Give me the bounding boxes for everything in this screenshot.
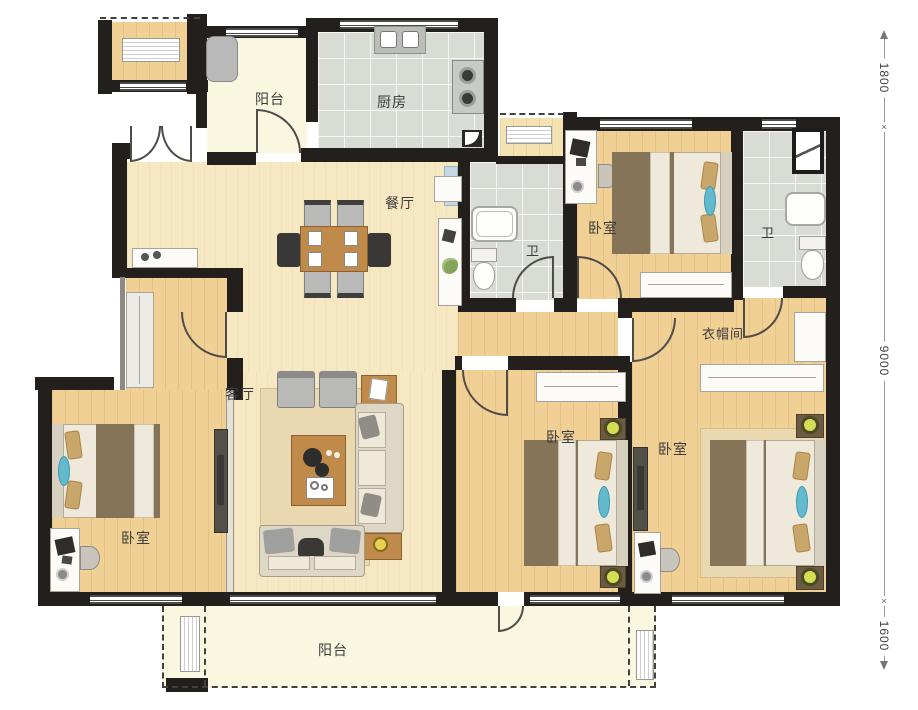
- window: [226, 28, 298, 37]
- window: [120, 82, 186, 91]
- radiator: [180, 616, 200, 672]
- room-label-closet: 衣帽间: [702, 324, 744, 343]
- laptop-icon: [638, 541, 656, 558]
- room-label-bath-middle: 卫: [526, 241, 540, 260]
- loveseat-seat: [314, 556, 356, 570]
- wall: [301, 148, 496, 162]
- window-framed-glass: [796, 132, 820, 170]
- room-label-kitchen: 厨房: [377, 92, 407, 112]
- dimension-arrow-down-icon: [880, 661, 888, 670]
- wall: [554, 298, 564, 312]
- dashed-edge: [100, 17, 200, 19]
- room-label-bedroom-bottom-middle: 卧室: [546, 427, 576, 447]
- dimension-arrow-up-icon: [880, 30, 888, 39]
- wall: [458, 298, 516, 312]
- wall: [306, 18, 318, 122]
- lamp-icon: [801, 568, 819, 586]
- armchair: [277, 371, 315, 408]
- radiator: [506, 126, 552, 144]
- room-label-bedroom-bottom-right: 卧室: [658, 439, 688, 459]
- wall: [442, 370, 456, 596]
- dining-chair: [277, 233, 301, 267]
- tray-ring: [310, 481, 319, 490]
- dining-chair: [304, 270, 331, 298]
- lamp-icon: [604, 568, 622, 586]
- cup-icon: [326, 450, 332, 456]
- bathtub-inner: [476, 211, 513, 237]
- bed-blanket-fold: [650, 152, 670, 254]
- wardrobe: [126, 292, 154, 388]
- closet-shelf: [700, 364, 824, 392]
- wardrobe: [640, 272, 732, 298]
- desk-chair: [660, 548, 680, 572]
- wall: [508, 356, 630, 370]
- wall: [112, 143, 130, 159]
- book: [369, 378, 389, 401]
- desk-chair: [80, 546, 100, 570]
- window: [762, 119, 796, 129]
- toilet-bowl: [801, 250, 824, 280]
- dimension-tick: ×: [881, 596, 886, 606]
- corridor-floor: [458, 312, 618, 356]
- stove-burner: [459, 90, 476, 107]
- wardrobe-line: [544, 386, 618, 387]
- entry-door-right-leaf: [161, 126, 192, 162]
- console-decor: [141, 253, 149, 261]
- bed-blanket-fold: [558, 440, 576, 566]
- cup-icon: [334, 452, 340, 458]
- room-label-living: 客厅: [225, 384, 255, 404]
- closet-shelf: [794, 312, 826, 362]
- lamp-icon: [801, 416, 819, 434]
- dining-chair: [337, 270, 364, 298]
- wall: [455, 356, 462, 370]
- sofa-cushion: [358, 450, 386, 486]
- tv-screen: [637, 466, 644, 510]
- window: [530, 595, 620, 604]
- loveseat-seat: [268, 556, 310, 570]
- console-decor: [153, 251, 161, 259]
- wall: [731, 131, 743, 300]
- flower-icon: [573, 182, 582, 191]
- place-setting: [308, 231, 322, 246]
- pillow-accent: [704, 186, 716, 216]
- balcony-door-gap: [498, 592, 524, 606]
- dimension-label-9000: 9000: [877, 342, 891, 381]
- pillow-accent: [598, 486, 610, 518]
- room-label-balcony-bottom: 阳台: [318, 640, 348, 660]
- place-setting: [344, 231, 358, 246]
- dimension-label-1800: 1800: [877, 59, 891, 98]
- bathtub: [785, 192, 826, 226]
- wardrobe-line: [139, 296, 140, 384]
- loveseat-item: [298, 538, 324, 556]
- wall-thin: [120, 277, 125, 390]
- pillow-accent: [58, 456, 70, 486]
- armchair: [319, 371, 357, 408]
- wall: [622, 298, 734, 312]
- dining-chair: [367, 233, 391, 267]
- bed-blanket-fold: [134, 424, 154, 518]
- desk-item: [576, 158, 586, 166]
- dashed-edge: [654, 606, 656, 688]
- bed-blanket-fold: [746, 440, 764, 566]
- place-setting: [308, 252, 322, 267]
- room-label-bedroom-top-right: 卧室: [588, 218, 618, 238]
- dining-chair: [304, 200, 331, 228]
- window: [600, 119, 692, 129]
- bed-headboard: [616, 440, 628, 566]
- dimension-label-1600: 1600: [877, 617, 891, 656]
- radiator: [122, 38, 180, 62]
- loveseat-cushion: [263, 527, 295, 554]
- dashed-edge: [500, 113, 564, 115]
- bowl-icon: [373, 537, 388, 552]
- room-label-dining: 餐厅: [385, 193, 415, 213]
- dining-chair: [337, 200, 364, 228]
- dashed-edge: [162, 686, 656, 688]
- kitchen-sink-basin: [380, 31, 397, 48]
- lamp-icon: [604, 419, 622, 437]
- flower-icon: [642, 572, 651, 581]
- balcony-bottom-floor: [162, 606, 656, 688]
- toilet: [799, 236, 826, 250]
- room-label-bath-right: 卫: [761, 223, 775, 242]
- wardrobe: [536, 372, 626, 402]
- wall: [112, 158, 127, 270]
- window: [90, 595, 182, 604]
- tray-ring: [321, 484, 328, 491]
- dashed-edge: [162, 606, 164, 688]
- kettle-icon: [315, 463, 329, 477]
- loveseat-cushion: [329, 527, 361, 554]
- entry-door-left-leaf: [130, 126, 161, 162]
- bed-headboard: [814, 440, 826, 566]
- dimension-tick: ×: [881, 122, 886, 132]
- wall: [207, 152, 256, 165]
- room-label-bedroom-left: 卧室: [121, 528, 151, 548]
- fridge: [434, 176, 462, 202]
- wall: [618, 298, 632, 318]
- wall: [166, 678, 208, 692]
- dashed-edge: [204, 606, 206, 686]
- kitchen-sink-basin: [402, 31, 419, 48]
- toilet-bowl: [473, 262, 495, 290]
- flower-icon: [58, 570, 67, 579]
- toilet: [471, 248, 497, 262]
- place-setting: [344, 252, 358, 267]
- dashed-edge: [628, 606, 630, 686]
- closet-shelf-line: [708, 377, 816, 378]
- window: [672, 595, 784, 604]
- wall: [227, 278, 243, 312]
- bed-headboard: [720, 152, 732, 254]
- desk-item: [61, 555, 72, 564]
- tv-screen: [217, 455, 224, 505]
- ac-unit: [206, 36, 238, 82]
- window: [230, 595, 436, 604]
- wall: [484, 18, 498, 118]
- wall: [196, 92, 207, 128]
- pillow-accent: [796, 486, 808, 518]
- floor-plan: 阳台 厨房 餐厅 卫 卧室 卫 衣帽间 客厅 卧室 卧室 卧室 阳台 × × 1…: [0, 0, 918, 710]
- wall: [112, 268, 243, 278]
- wall: [783, 286, 826, 298]
- wall: [496, 156, 566, 164]
- wall: [826, 117, 840, 606]
- laptop-icon: [570, 138, 591, 157]
- room-label-balcony-top: 阳台: [255, 89, 285, 109]
- stove-burner: [459, 67, 476, 84]
- radiator: [636, 630, 654, 680]
- wardrobe-line: [648, 284, 724, 285]
